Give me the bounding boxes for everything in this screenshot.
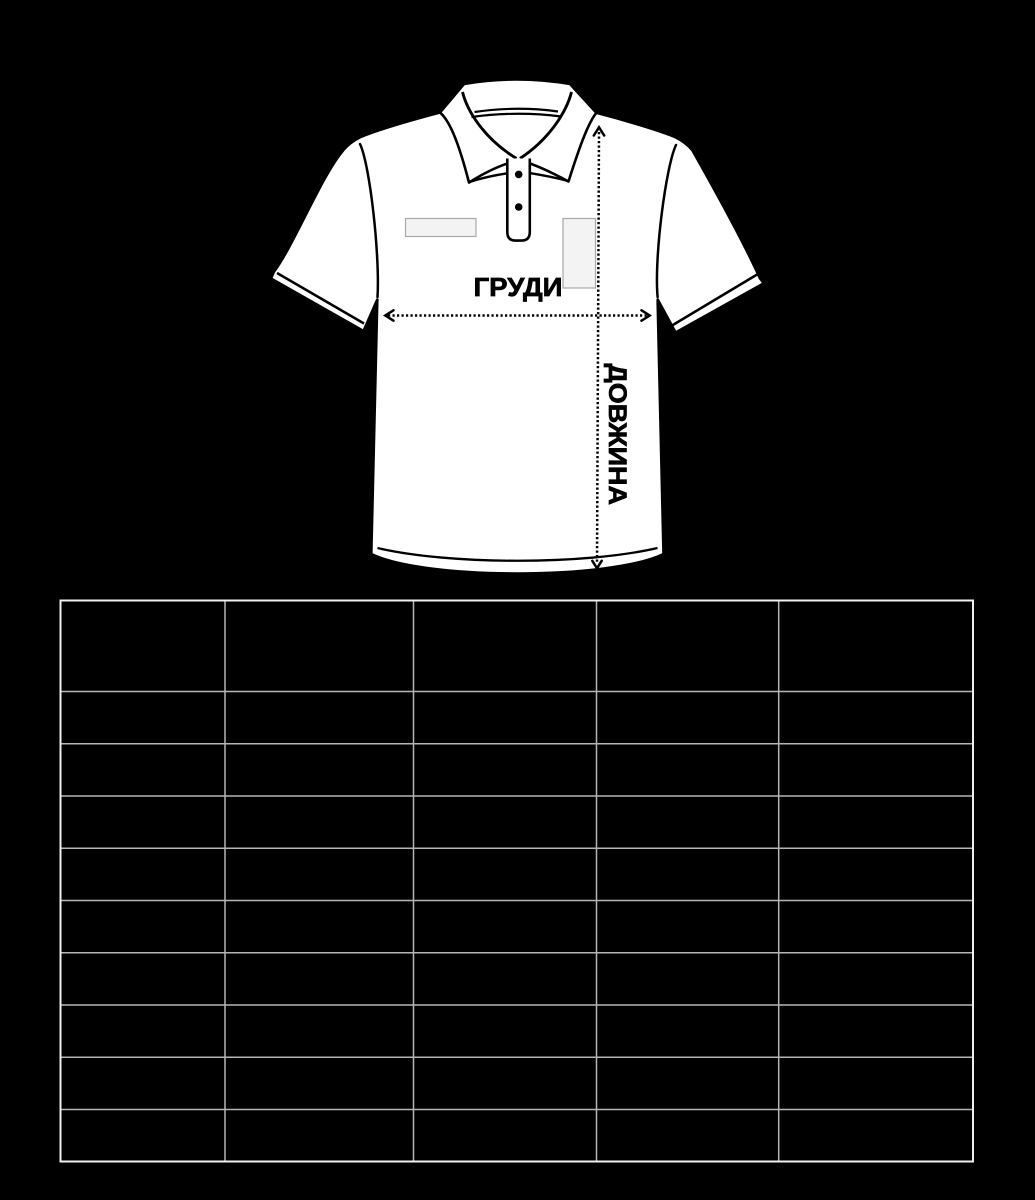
svg-text:ДОВЖИНА: ДОВЖИНА: [603, 364, 631, 506]
svg-text:ГРУДИ: ГРУДИ: [474, 272, 563, 302]
